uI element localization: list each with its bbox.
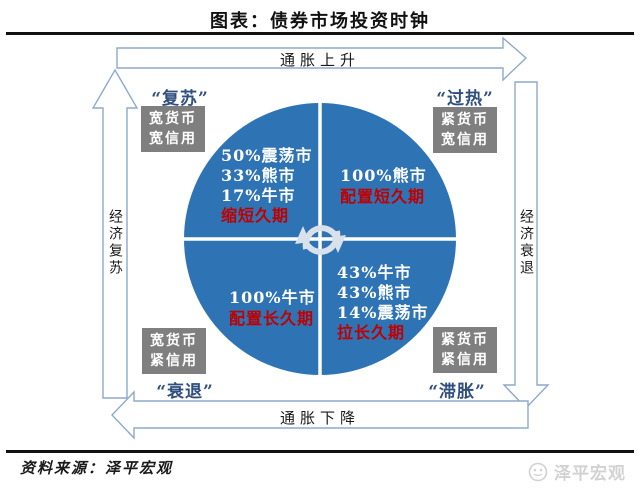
policy-line: 紧信用 [441,350,489,370]
policy-box-bottom-left: 宽货币 紧信用 [142,328,206,374]
stat-line: 14%震荡市 [337,303,428,323]
policy-line: 紧货币 [441,330,489,350]
policy-box-top-left: 宽货币 宽信用 [141,106,205,152]
stat-line: 17%牛市 [221,186,312,206]
quadrant-stats-top-left: 50%震荡市 33%熊市 17%牛市 缩短久期 [221,146,312,226]
policy-line: 宽信用 [441,130,489,150]
strategy-line: 配置长久期 [229,308,316,329]
quadrant-stats-top-right: 100%熊市 配置短久期 [340,165,427,207]
axis-label-inflation-down: 通胀下降 [240,407,400,428]
policy-box-bottom-right: 紧货币 紧信用 [433,327,497,373]
stat-line: 100%牛市 [229,287,316,308]
axis-label-inflation-up: 通胀上升 [240,49,400,70]
investment-clock-figure: 图表：债券市场投资时钟 通胀上升 通胀下降 经济复苏 经济衰退 “复苏” “过热… [0,0,640,497]
axis-label-economy-decline: 经济衰退 [516,198,536,288]
policy-line: 宽信用 [149,129,197,149]
source-note: 资料来源：泽平宏观 [20,457,173,478]
phase-label-recession: “衰退” [130,377,240,402]
axis-label-economy-recovery: 经济复苏 [105,198,125,288]
policy-line: 宽货币 [150,331,198,351]
watermark-label: 泽平宏观 [554,459,626,484]
stat-line: 100%熊市 [340,165,427,186]
watermark: 泽平宏观 [527,459,626,484]
stat-line: 50%震荡市 [221,146,312,166]
strategy-line: 配置短久期 [340,186,427,207]
policy-line: 紧信用 [150,351,198,371]
stat-line: 43%熊市 [337,283,428,303]
quadrant-stats-bottom-right: 43%牛市 43%熊市 14%震荡市 拉长久期 [337,263,428,343]
policy-line: 紧货币 [441,110,489,130]
strategy-line: 拉长久期 [337,323,428,343]
policy-line: 宽货币 [149,109,197,129]
policy-box-top-right: 紧货币 宽信用 [433,107,497,153]
zeping-logo-icon [527,461,549,483]
footer-divider [6,450,634,453]
stat-line: 33%熊市 [221,166,312,186]
quadrant-stats-bottom-left: 100%牛市 配置长久期 [229,287,316,329]
phase-label-stagflation: “滞胀” [402,377,512,402]
phase-label-overheat: “过热” [410,84,520,109]
strategy-line: 缩短久期 [221,206,312,226]
stat-line: 43%牛市 [337,263,428,283]
